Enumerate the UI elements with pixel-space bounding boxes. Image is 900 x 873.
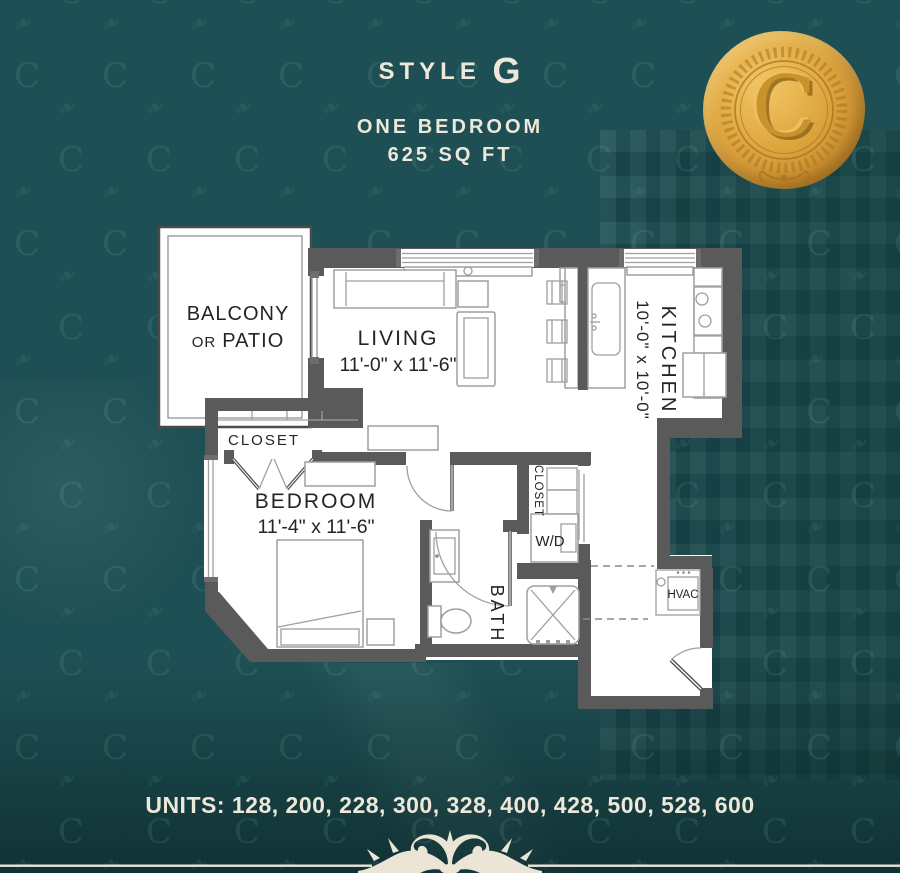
console-table xyxy=(368,426,438,450)
label-balcony-or: OR xyxy=(192,334,217,351)
kitchen-window xyxy=(619,249,701,275)
label-hvac: HVAC xyxy=(667,589,698,601)
refrigerator xyxy=(683,353,726,397)
units-line: UNITS: 128, 200, 228, 300, 328, 400, 428… xyxy=(0,792,900,819)
side-table xyxy=(458,281,488,307)
seal-letter: C xyxy=(752,58,816,156)
style-letter: G xyxy=(493,50,522,91)
label-living: LIVING xyxy=(358,327,439,350)
page-background: C❧C❧C❧C❧C❧C❧C❧C❧C❧C❧C❧C❧C❧C❧C❧C❧C❧C❧C❧C❧… xyxy=(0,0,900,873)
bedroom-window xyxy=(204,455,218,582)
kitchen-island xyxy=(560,266,625,390)
wax-seal: C C C xyxy=(703,31,865,189)
bottom-flourish xyxy=(0,830,900,873)
style-label: STYLE xyxy=(378,58,480,85)
label-bedroom: BEDROOM xyxy=(255,490,378,513)
seal-ornament xyxy=(759,171,808,181)
balcony-sliding-door xyxy=(310,271,319,364)
vanity xyxy=(430,530,459,582)
label-living-dims: 11'-0" x 11'-6" xyxy=(339,354,456,376)
label-bedroom-closet: CLOSET xyxy=(228,432,300,449)
label-balcony: BALCONY xyxy=(187,303,290,325)
label-washer-dryer: W/D xyxy=(535,533,564,550)
shower xyxy=(527,586,579,644)
label-hall-closet: CLOSET xyxy=(532,465,544,517)
label-kitchen-dims: 10'-0" x 10'-0" xyxy=(633,300,652,420)
wax-seal-art: C C C xyxy=(703,31,865,189)
bed xyxy=(277,540,363,647)
nightstand xyxy=(367,619,394,645)
label-kitchen: KITCHEN xyxy=(657,306,679,415)
dresser xyxy=(305,462,375,486)
label-balcony-patio: PATIO xyxy=(222,330,284,352)
label-bath: BATH xyxy=(487,585,507,644)
sofa xyxy=(334,270,456,308)
label-bedroom-dims: 11'-4" x 11'-6" xyxy=(257,516,374,538)
armchair xyxy=(457,312,495,386)
label-balcony-2: ORPATIO xyxy=(192,330,285,352)
